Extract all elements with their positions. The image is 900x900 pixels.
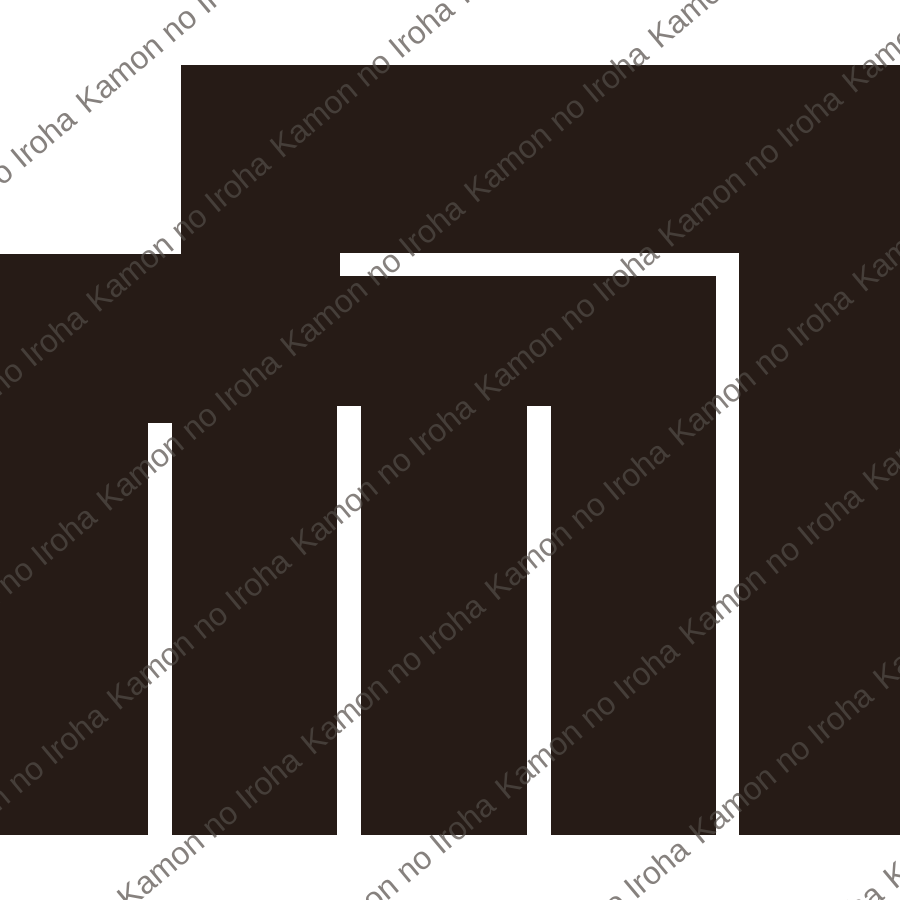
watermark-text: Kamon no Iroha — [641, 0, 848, 55]
crest-notch-top-left — [0, 0, 181, 254]
watermark-text: Kamon no Iroha — [692, 868, 899, 900]
watermark-text: Kamon no Iroha — [0, 888, 133, 900]
crest-slit-vertical-4 — [716, 253, 739, 835]
watermark-text: Kamon no Iroha — [447, 0, 654, 10]
crest-slit-horizontal — [340, 253, 739, 276]
kamon-crest-image: Kamon no IrohaKamon no IrohaKamon no Iro… — [0, 0, 900, 900]
crest-slit-vertical-3 — [527, 406, 551, 835]
crest-slit-vertical-2 — [337, 406, 361, 835]
crest-slit-vertical-1 — [148, 423, 172, 835]
